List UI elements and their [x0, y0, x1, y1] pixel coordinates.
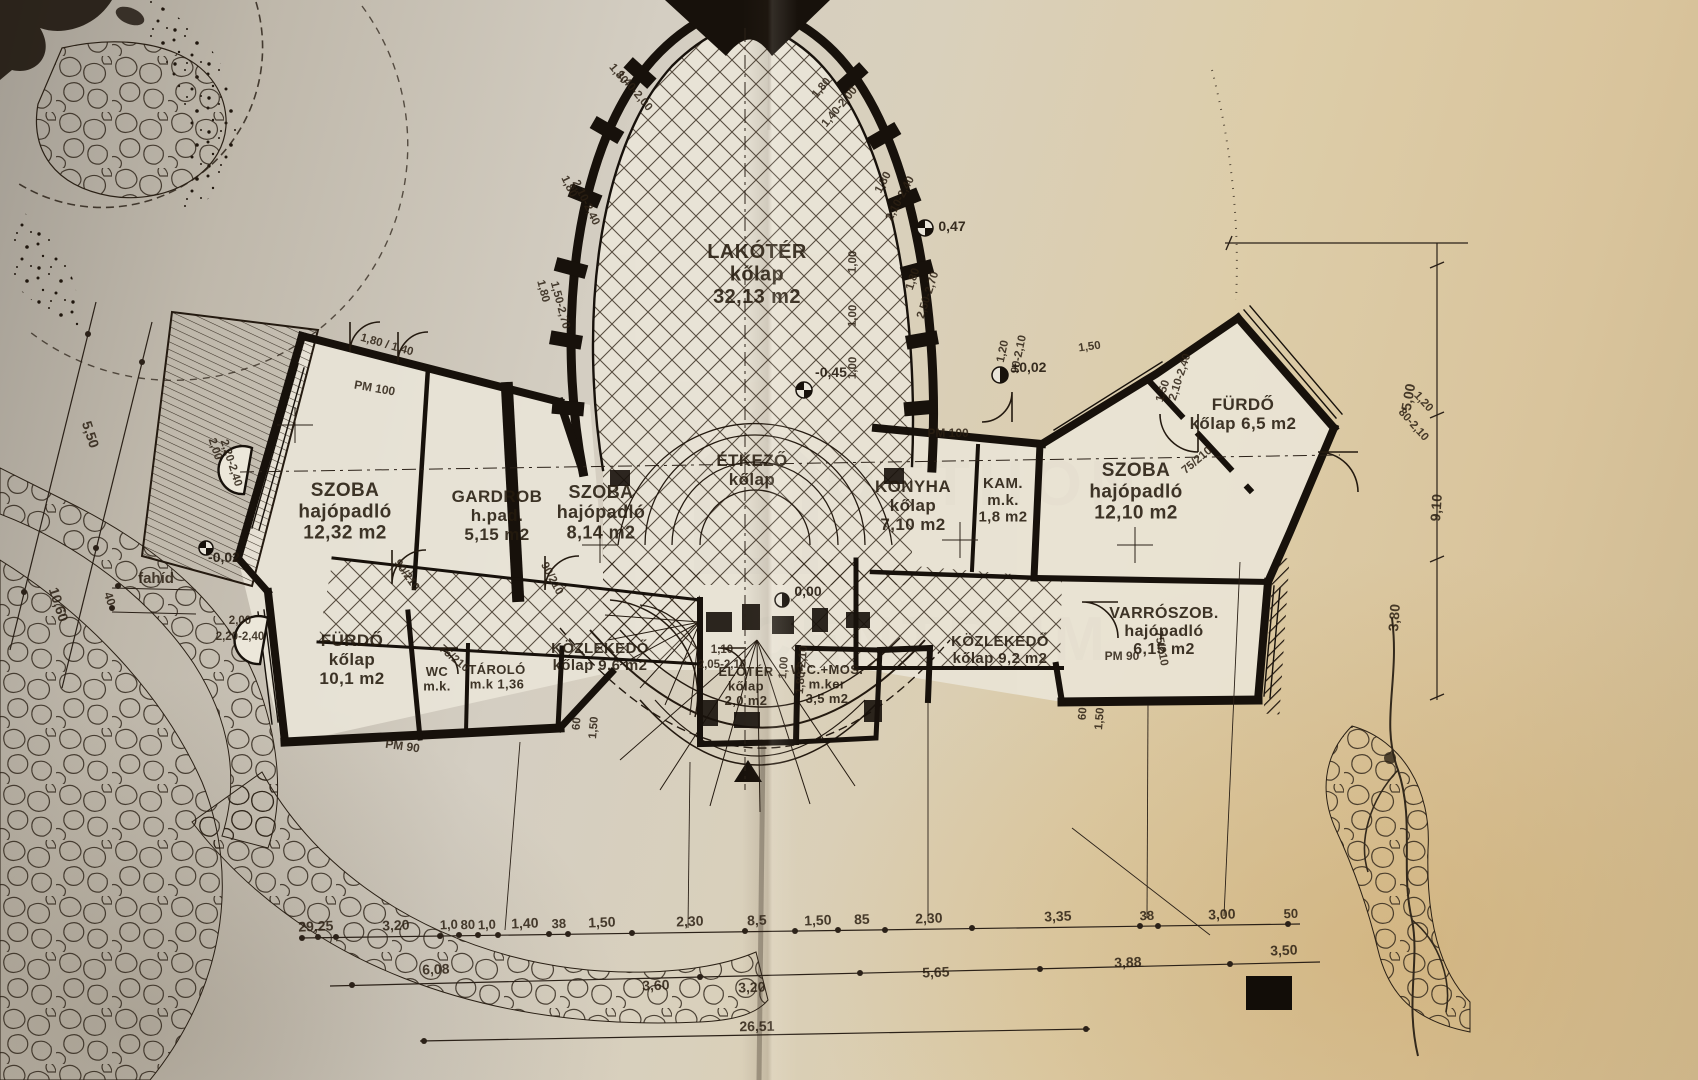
dimension-label: 38	[1139, 908, 1154, 923]
stone-floor-hatching	[318, 22, 1062, 668]
dimension-label: 1,00	[777, 656, 791, 679]
dimension-label: 50	[1283, 906, 1298, 921]
paper-stain	[1384, 752, 1396, 764]
dimension-label: 2,00	[229, 615, 251, 627]
benchmark-icon	[796, 382, 812, 398]
room-label-szoba-left: SZOBAhajópadló12,32 m2	[298, 480, 391, 544]
dimension-label: 60	[570, 717, 583, 731]
dimension-label: 1,00	[847, 356, 860, 379]
pebble-band-bottom	[192, 772, 768, 1023]
dimension-label: 3,00	[1208, 906, 1236, 923]
dimension-label: 26,51	[739, 1018, 775, 1035]
dimension-label: 1,50	[1093, 707, 1107, 730]
scanned-floor-plan-photo: OTTHON CENTRUM	[0, 0, 1698, 1080]
room-label-tarolo: TÁROLÓm.k 1,36	[468, 662, 525, 692]
dimension-label: 3,35	[1044, 908, 1072, 925]
dimension-label: 80	[460, 917, 475, 932]
floor-plan-drawing: OTTHON CENTRUM	[0, 0, 1698, 1080]
dimension-label: 1,40	[511, 915, 539, 932]
dimension-label: 1,0	[478, 917, 497, 933]
dimension-label: 1,50	[587, 716, 601, 739]
elevation-mark: -0,02	[208, 549, 240, 565]
stipple-band	[8, 208, 80, 332]
dimension-label: 1,10	[711, 644, 733, 656]
room-label-kozlekedo-left: KÖZLEKEDŐkőlap 9,6 m2	[551, 639, 649, 674]
annotation-label: PM 100	[927, 426, 969, 440]
dimension-label: 5,00	[1398, 382, 1419, 412]
elevation-mark: 0,00	[794, 583, 821, 599]
elevation-mark: ±0,02	[1012, 359, 1047, 375]
room-label-wc: WCm.k.	[423, 664, 451, 694]
dimension-label: 2,05-2,10	[698, 659, 747, 671]
dimension-label: 38	[551, 916, 566, 931]
dimension-label: 1,0	[440, 917, 459, 933]
dimension-label: 6,08	[422, 961, 450, 978]
dimension-label: 2,30	[915, 910, 943, 927]
dimension-label: 3,20	[738, 979, 766, 996]
dimension-label: 1,50	[804, 912, 832, 929]
dimension-label: 60	[1076, 707, 1089, 721]
dimension-label: 1,20	[995, 339, 1011, 363]
black-mark-bottom-right	[1246, 976, 1292, 1010]
benchmark-icon	[992, 367, 1008, 383]
dimension-label: 5,50	[79, 419, 103, 450]
elevation-mark: 0,47	[938, 218, 965, 234]
dimension-label: 3,88	[1114, 954, 1142, 971]
room-label-szoba-mid: SZOBAhajópadló8,14 m2	[557, 482, 646, 542]
room-label-kozlekedo-right: KÖZLEKEDŐkőlap 9,2 m2	[951, 632, 1049, 667]
dimension-label: 2,30	[676, 913, 704, 930]
dimension-label: 5,65	[922, 964, 950, 981]
benchmark-icon	[775, 593, 789, 607]
benchmark-icon	[917, 220, 933, 236]
dimension-label: 8,5	[747, 912, 767, 929]
annotation-label: PM 90	[1105, 649, 1140, 663]
annotation-label: fahíd	[138, 570, 174, 587]
elevation-mark: -0,45	[815, 364, 847, 380]
dimension-label: 3,60	[642, 977, 670, 994]
dimension-label: 29,25	[298, 917, 334, 934]
dimension-label: 9,10	[1427, 493, 1445, 522]
dimension-label: 2,20-2,40	[216, 631, 265, 643]
dimension-label: 3,50	[1270, 942, 1298, 959]
pebble-patch-top-left	[37, 42, 227, 198]
dimension-label: 1,50	[588, 914, 616, 931]
stipple-trail-top-right	[1212, 70, 1237, 300]
dimension-label: 1,50	[1078, 340, 1102, 355]
room-label-furdo-bottomleft: FÜRDŐkőlap10,1 m2	[319, 631, 384, 688]
dimension-label: 40	[101, 590, 119, 607]
dimension-label: 85	[854, 911, 870, 928]
dimension-label: 1,00	[847, 304, 860, 327]
room-label-szoba-right: SZOBAhajópadló12,10 m2	[1089, 460, 1182, 524]
dimension-label: 1,00	[847, 250, 860, 273]
dimension-label: 3,20	[382, 917, 410, 934]
dimension-label: 3,80	[1385, 603, 1403, 632]
